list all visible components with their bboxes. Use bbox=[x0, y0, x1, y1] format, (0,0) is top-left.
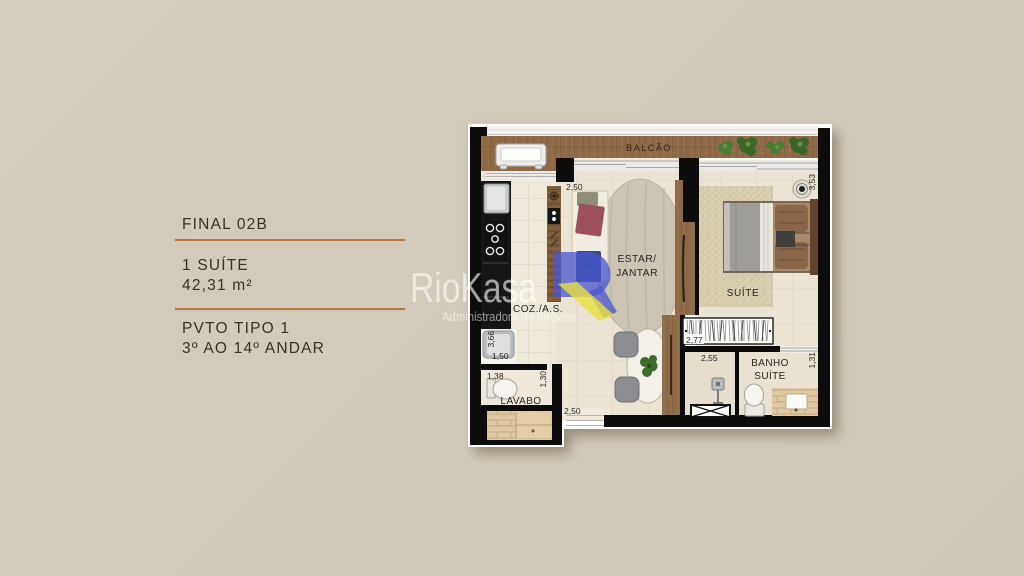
svg-text:2,77: 2,77 bbox=[686, 335, 703, 345]
svg-text:BANHO: BANHO bbox=[751, 358, 789, 369]
svg-text:SUÍTE: SUÍTE bbox=[727, 286, 759, 299]
svg-text:RioKasa: RioKasa bbox=[410, 264, 538, 311]
svg-text:2,50: 2,50 bbox=[566, 182, 583, 192]
svg-text:ESTAR/: ESTAR/ bbox=[617, 254, 656, 265]
svg-text:3,66: 3,66 bbox=[486, 331, 496, 348]
svg-text:Administradora de Imóveis: Administradora de Imóveis bbox=[442, 309, 576, 324]
svg-text:2,55: 2,55 bbox=[701, 353, 718, 363]
svg-text:SUÍTE: SUÍTE bbox=[754, 369, 785, 382]
svg-text:1,30: 1,30 bbox=[538, 371, 548, 388]
svg-text:LAVABO: LAVABO bbox=[501, 396, 542, 407]
svg-text:1,31: 1,31 bbox=[807, 352, 817, 369]
svg-text:1,38: 1,38 bbox=[487, 371, 504, 381]
svg-text:3,53: 3,53 bbox=[807, 174, 817, 191]
svg-text:2,50: 2,50 bbox=[564, 406, 581, 416]
svg-text:1,50: 1,50 bbox=[492, 351, 509, 361]
svg-text:BALCÃO: BALCÃO bbox=[626, 143, 672, 153]
svg-text:JANTAR: JANTAR bbox=[616, 268, 658, 279]
